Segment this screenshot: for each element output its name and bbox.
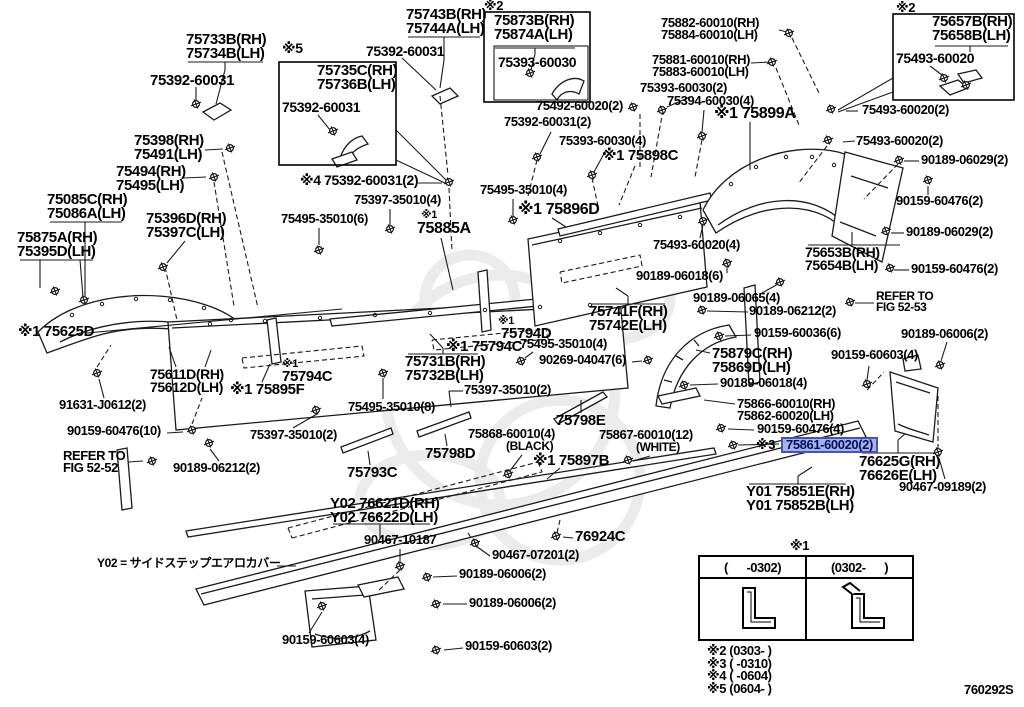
part-number-label[interactable]: 90159-60603(4) [282, 634, 369, 646]
bracket-style-late [807, 579, 912, 639]
part-number-label[interactable]: ※4 75392-60031(2) [300, 174, 418, 187]
part-number-label[interactable]: 90159-60476(2) [911, 263, 998, 275]
part-number-label[interactable]: 90467-07201(2) [492, 549, 579, 561]
part-number-label[interactable]: ※1 75625D [18, 325, 94, 339]
part-number-label[interactable]: 75611D(RH)75612D(LH) [150, 368, 224, 395]
parts-diagram-canvas: 75733B(RH)75734B(LH)75392-60031※575735C(… [0, 0, 1024, 707]
y02-legend-note: Y02 = サイドステップエアロカバー [97, 558, 280, 569]
part-number-label[interactable]: 75493-60020(4) [653, 239, 740, 251]
part-number-label[interactable]: ※1 75896D [518, 202, 599, 217]
production-date-table: ( -0302) (0302- ) [698, 555, 914, 641]
sill-bracket-early-icon [723, 582, 783, 636]
part-number-label[interactable]: 90189-06018(6) [636, 270, 723, 282]
part-number-label[interactable]: 75882-60010(RH)75884-60010(LH) [661, 17, 759, 42]
footnote: ※5 (0604- ) [707, 683, 772, 695]
ref-marker-5: ※5 [282, 42, 303, 55]
part-number-label[interactable]: 90159-60476(10) [67, 425, 161, 437]
refer-to-fig-52-52: REFER TOFIG 52-52 [63, 450, 125, 475]
part-number-label[interactable]: 75731B(RH)75732B(LH) [405, 355, 485, 384]
ref-marker-3: ※3 [756, 439, 775, 451]
part-number-label[interactable]: 90189-06212(2) [173, 462, 260, 474]
part-number-label[interactable]: 90467-10187 [364, 534, 436, 546]
part-number-label[interactable]: 75493-60020 [896, 52, 974, 65]
part-number-label[interactable]: Y01 75851E(RH)Y01 75852B(LH) [746, 485, 855, 514]
table-col-early: ( -0302) [700, 557, 807, 577]
part-number-label[interactable]: 90189-06029(2) [906, 226, 993, 238]
part-number-label[interactable]: 75735C(RH)75736B(LH) [317, 64, 397, 93]
part-number-label[interactable]: 75393-60030 [498, 56, 576, 69]
part-number-label[interactable]: 91631-J0612(2) [59, 399, 146, 411]
part-number-label[interactable]: 75492-60020(2) [536, 100, 623, 112]
part-number-label[interactable]: 75495-35010(6) [281, 213, 368, 225]
part-number-label[interactable]: 90189-06006(2) [901, 328, 988, 340]
part-number-label[interactable]: 75798E [556, 414, 605, 428]
part-number-label[interactable]: 90189-06018(4) [720, 377, 807, 389]
part-number-label[interactable]: ※1 75895F [230, 383, 304, 397]
part-number-label[interactable]: (WHITE) [636, 442, 680, 453]
part-number-label[interactable]: 75885A [417, 221, 471, 236]
part-number-label[interactable]: 75493-60020(2) [856, 135, 943, 147]
rear-fender-flare-drawing [703, 149, 858, 233]
part-number-label[interactable]: 75495-35010(8) [348, 401, 435, 413]
part-number-label[interactable]: ※1 75899A [714, 106, 795, 121]
strip-75793C-drawing [341, 428, 393, 453]
ref-marker-2: ※2 [484, 0, 503, 12]
part-number-label[interactable]: 76924C [575, 530, 625, 544]
strip-75798D-drawing [417, 412, 471, 437]
part-number-label[interactable]: 75085C(RH)75086A(LH) [47, 193, 127, 222]
part-number-label[interactable]: (BLACK) [506, 441, 553, 452]
part-number-label[interactable]: 90269-04047(6) [539, 354, 626, 366]
part-number-label[interactable]: 75398(RH)75491(LH) [134, 134, 204, 163]
part-number-label[interactable]: 75392-60031 [282, 101, 360, 114]
part-number-label[interactable]: 75873B(RH)75874A(LH) [494, 14, 574, 43]
part-number-label[interactable]: 75653B(RH)75654B(LH) [805, 246, 880, 273]
part-number-label[interactable]: 75493-60020(2) [862, 104, 949, 116]
part-number-label[interactable]: 75393-60030(4) [559, 135, 646, 147]
bracket-style-early [700, 579, 807, 639]
part-number-label[interactable]: Y02 76621D(RH)Y02 76622D(LH) [330, 497, 439, 526]
part-number-label[interactable]: 75879C(RH)75869D(LH) [712, 347, 792, 376]
part-number-label[interactable]: 75866-60010(RH)75862-60020(LH) [737, 398, 835, 423]
rear-mudguard-drawing [890, 372, 938, 442]
front-moulding-strip-drawing [330, 294, 590, 326]
part-number-label[interactable]: 75392-60031 [366, 45, 444, 58]
part-number-label[interactable]: 75397-35010(4) [354, 194, 441, 206]
part-number-label[interactable]: 75396D(RH)75397C(LH) [146, 212, 226, 241]
part-number-label[interactable]: 75397-35010(2) [464, 384, 551, 396]
part-number-label[interactable]: 75392-60031(2) [504, 116, 591, 128]
part-number-label[interactable]: 90189-06029(2) [921, 154, 1008, 166]
ref-marker-1: ※1 [421, 210, 437, 220]
part-number-label[interactable]: 90189-06212(2) [749, 305, 836, 317]
part-number-label[interactable]: 75793C [347, 466, 397, 480]
part-number-label[interactable]: ※1 75898C [602, 149, 678, 163]
part-number-label[interactable]: 90189-06006(2) [459, 568, 546, 580]
part-number-label[interactable]: 75798D [425, 447, 475, 461]
part-number-label[interactable]: 75733B(RH)75734B(LH) [186, 33, 266, 62]
figure-code: 760292S [964, 684, 1013, 696]
sill-bracket-late-icon [830, 582, 890, 636]
table-col-late: (0302- ) [807, 557, 912, 577]
part-number-label[interactable]: 90467-09189(2) [899, 481, 986, 493]
part-number-label[interactable]: 90159-60476(2) [896, 195, 983, 207]
part-number-label[interactable]: 90159-60036(6) [754, 327, 841, 339]
selected-part-number[interactable]: 75861-60020(2) [781, 437, 878, 453]
part-number-label[interactable]: 75397-35010(2) [250, 429, 337, 441]
part-number-label[interactable]: 75875A(RH)75395D(LH) [17, 231, 97, 260]
part-number-label[interactable]: 75657B(RH)75658B(LH) [932, 15, 1012, 44]
part-number-label[interactable]: ※1 75897B [533, 454, 609, 468]
refer-to-fig-52-53: REFER TOFIG 52-53 [876, 291, 933, 314]
part-number-label[interactable]: 75494(RH)75495(LH) [116, 165, 186, 194]
part-number-label[interactable]: 75794C [282, 370, 332, 384]
part-number-label[interactable]: 75392-60031 [150, 74, 234, 88]
part-number-label[interactable]: 75495-35010(4) [480, 184, 567, 196]
table-marker: ※1 [790, 540, 809, 552]
part-number-label[interactable]: 90189-06006(2) [469, 597, 556, 609]
part-number-label[interactable]: 75881-60010(RH)75883-60010(LH) [652, 54, 750, 79]
part-number-label[interactable]: 90159-60603(2) [465, 640, 552, 652]
part-number-label[interactable]: 75741F(RH)75742E(LH) [589, 305, 668, 334]
ref-marker-2: ※2 [896, 2, 915, 14]
part-number-label[interactable]: 75743B(RH)75744A(LH) [406, 8, 486, 37]
part-number-label[interactable]: 90159-60476(4) [757, 423, 844, 435]
part-number-label[interactable]: 90159-60603(4) [831, 349, 918, 361]
